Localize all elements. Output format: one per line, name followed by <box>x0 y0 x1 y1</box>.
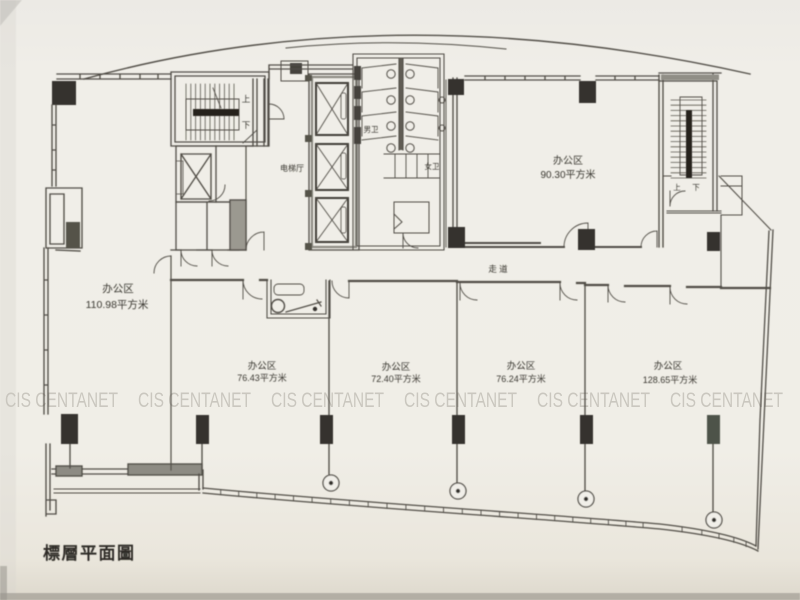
svg-text:128.65平方米: 128.65平方米 <box>643 374 698 385</box>
svg-text:CIS CENTANET: CIS CENTANET <box>670 389 783 412</box>
svg-text:下: 下 <box>692 183 700 192</box>
svg-text:72.40平方米: 72.40平方米 <box>371 373 421 384</box>
svg-text:CIS CENTANET: CIS CENTANET <box>271 389 384 412</box>
svg-text:办公区: 办公区 <box>507 360 536 372</box>
svg-text:办公区: 办公区 <box>248 360 277 372</box>
svg-text:90.30平方米: 90.30平方米 <box>540 168 595 181</box>
svg-text:上: 上 <box>242 94 251 104</box>
svg-text:標層平面圖: 標層平面圖 <box>43 543 136 563</box>
svg-text:上: 上 <box>673 183 681 192</box>
svg-text:76.24平方米: 76.24平方米 <box>496 373 546 384</box>
svg-text:走 道: 走 道 <box>488 264 508 274</box>
svg-text:76.43平方米: 76.43平方米 <box>237 372 287 383</box>
svg-text:办公区: 办公区 <box>102 282 134 295</box>
svg-text:女卫: 女卫 <box>425 161 440 171</box>
svg-text:办公区: 办公区 <box>553 154 583 167</box>
svg-text:110.98平方米: 110.98平方米 <box>86 298 149 311</box>
svg-text:下: 下 <box>242 120 251 130</box>
svg-text:CIS CENTANET: CIS CENTANET <box>404 389 517 412</box>
svg-text:CIS CENTANET: CIS CENTANET <box>138 389 251 412</box>
svg-text:办公区: 办公区 <box>654 360 683 372</box>
svg-text:CIS CENTANET: CIS CENTANET <box>5 389 118 412</box>
svg-text:电梯厅: 电梯厅 <box>280 163 304 173</box>
svg-text:办公区: 办公区 <box>382 361 411 373</box>
svg-text:男卫: 男卫 <box>364 125 379 134</box>
svg-text:CIS CENTANET: CIS CENTANET <box>537 389 650 412</box>
